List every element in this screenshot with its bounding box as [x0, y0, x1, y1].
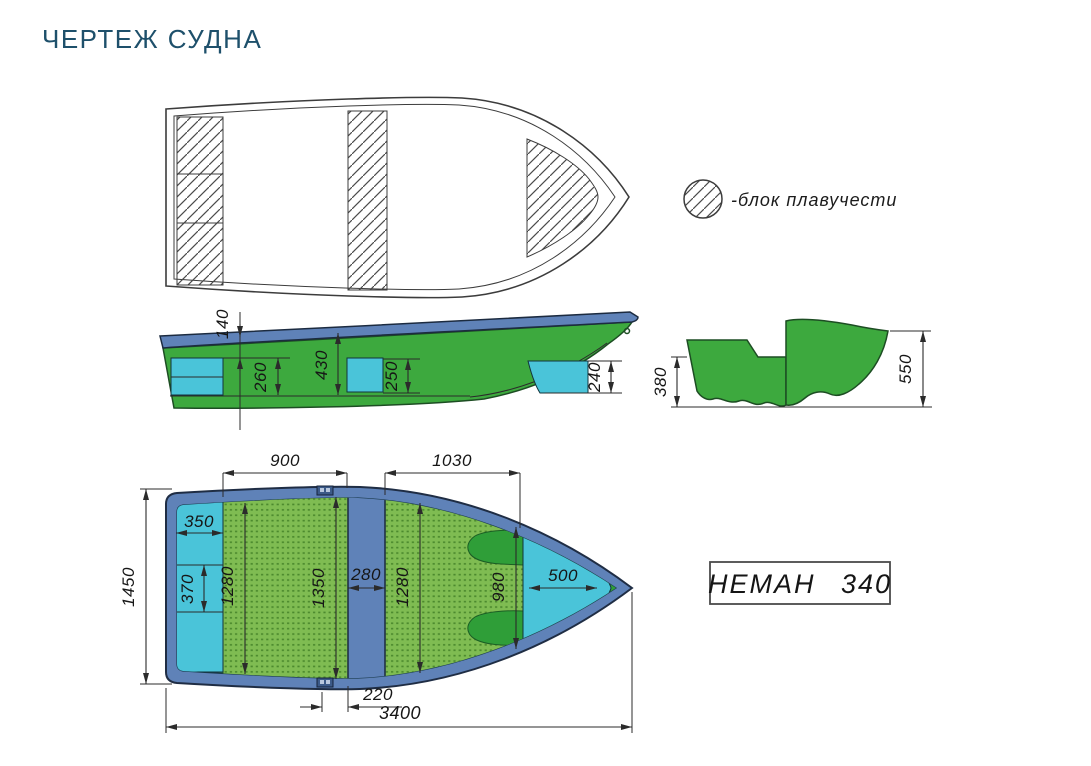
dim-380: 380 [651, 357, 677, 407]
dim-1450-label: 1450 [119, 567, 138, 607]
dim-430-label: 430 [312, 350, 331, 380]
side-bow-seat [528, 361, 588, 393]
model-name: НЕМАН 340 [708, 569, 892, 599]
oarlock-bottom [317, 678, 333, 687]
plan-view: 900 1030 1450 350 370 [119, 451, 640, 733]
dim-350-label: 350 [184, 512, 214, 531]
dim-220-label: 220 [362, 685, 393, 704]
bow-ring-detail [625, 329, 630, 334]
dim-980-label: 980 [489, 572, 508, 602]
legend: -блок плавучести [684, 180, 897, 218]
oarlock-top [317, 486, 333, 495]
side-view: 140 260 430 250 240 [160, 309, 638, 430]
dim-3400-label: 3400 [379, 703, 421, 723]
drawing-page: ЧЕРТЕЖ СУДНА [0, 0, 1091, 766]
dim-260-label: 260 [251, 362, 270, 393]
section-view: 380 550 [651, 319, 932, 407]
dim-1350-label: 1350 [309, 568, 328, 608]
dim-1450: 1450 [119, 489, 172, 684]
hatched-circle-icon [684, 180, 722, 218]
dim-250-label: 250 [382, 361, 401, 392]
dim-1280-right-label: 1280 [393, 567, 412, 607]
dim-550: 550 [896, 331, 923, 407]
dim-900-label: 900 [270, 451, 300, 470]
dim-1280-left-label: 1280 [218, 566, 237, 606]
dim-280-label: 280 [350, 565, 381, 584]
dim-240-label: 240 [585, 362, 604, 393]
section-stern-half [687, 340, 786, 406]
buoyancy-block-stern [177, 117, 223, 285]
top-view [166, 97, 629, 297]
dim-500-label: 500 [548, 566, 578, 585]
buoyancy-block-middle [348, 111, 387, 290]
model-plate: НЕМАН 340 [708, 562, 892, 604]
floor-panel-stern [223, 494, 348, 682]
dim-1030-label: 1030 [432, 451, 472, 470]
dim-140-label: 140 [213, 309, 232, 339]
dim-370-label: 370 [178, 574, 197, 604]
side-middle-seat [347, 358, 383, 392]
legend-label: -блок плавучести [731, 190, 897, 210]
dim-550-label: 550 [896, 354, 915, 384]
section-bow-half [786, 319, 888, 405]
dim-380-label: 380 [651, 367, 670, 397]
drawing-canvas: -блок плавучести 140 260 [0, 0, 1091, 766]
